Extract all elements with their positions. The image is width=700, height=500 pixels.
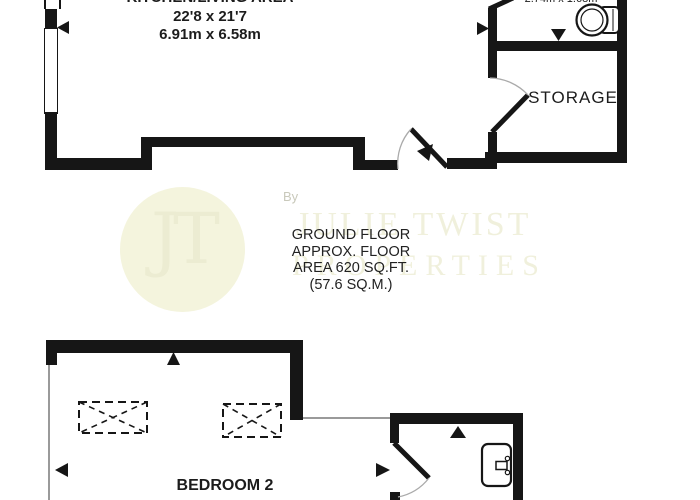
floor-info-line: (57.6 SQ.M.) bbox=[270, 277, 432, 294]
room-dims-shower-partial: 2.74m x 1.68m bbox=[501, 0, 621, 5]
floor-info-line: AREA 620 SQ.FT. bbox=[270, 260, 432, 277]
toilet-icon bbox=[577, 5, 620, 36]
floor-info-block: GROUND FLOOR APPROX. FLOOR AREA 620 SQ.F… bbox=[270, 227, 432, 293]
room-label-storage: STORAGE bbox=[503, 88, 643, 108]
room-dims-metric: 6.91m x 6.58m bbox=[60, 26, 360, 43]
room-label-kitchen-living: KITCHEN/LIVING AREA bbox=[60, 0, 360, 6]
room-label-bedroom2: BEDROOM 2 bbox=[125, 477, 325, 495]
floor-info-line: APPROX. FLOOR bbox=[270, 244, 432, 261]
room-dims-imperial: 22'8 x 21'7 bbox=[60, 8, 360, 25]
sink-icon bbox=[482, 444, 511, 486]
floorplan-canvas: JT By JULIE TWIST PROPERTIES bbox=[0, 0, 700, 500]
floor-info-line: GROUND FLOOR bbox=[270, 227, 432, 244]
skylight-hatch-icon bbox=[79, 402, 281, 437]
